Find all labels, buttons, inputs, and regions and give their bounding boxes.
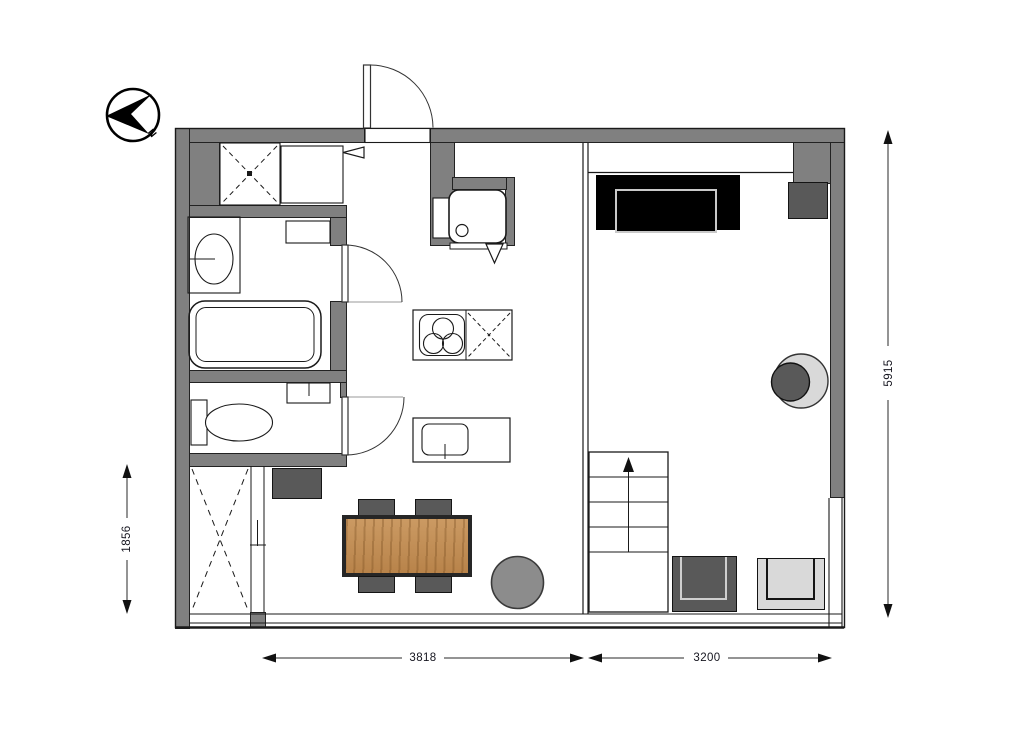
bathroom-door <box>342 245 402 302</box>
dimension-label-width-left: 3818 <box>406 652 439 664</box>
entrance-marker-icon <box>343 147 364 158</box>
dimension-label-room-left: 1856 <box>121 522 133 555</box>
stair-up-arrow-icon <box>623 457 634 472</box>
plan-outline <box>176 129 845 628</box>
closet-top <box>220 143 343 205</box>
washroom-shelf <box>286 221 330 243</box>
round-chair <box>772 354 829 408</box>
kitchen-marker-icon <box>486 244 503 263</box>
shoe-cabinet <box>281 146 343 203</box>
floor-plan-canvas: 5915 1856 3818 3200 N <box>0 0 1036 749</box>
toilet-door <box>342 397 404 455</box>
sliding-door <box>250 466 266 612</box>
closet-bottom <box>192 469 248 610</box>
vanity-basin <box>188 217 330 293</box>
kitchen-sink <box>433 190 507 263</box>
entrance-threshold <box>365 129 430 143</box>
staircase <box>589 452 668 612</box>
plan-linework <box>0 0 1036 749</box>
partition-line <box>583 143 793 614</box>
stove-burners <box>413 310 512 360</box>
toilet <box>191 383 330 445</box>
bathtub <box>189 301 321 368</box>
island-sink <box>413 418 510 462</box>
entrance-door <box>343 65 433 158</box>
dimension-label-height: 5915 <box>883 356 895 389</box>
round-stool <box>492 557 544 609</box>
dimension-label-width-right: 3200 <box>690 652 723 664</box>
